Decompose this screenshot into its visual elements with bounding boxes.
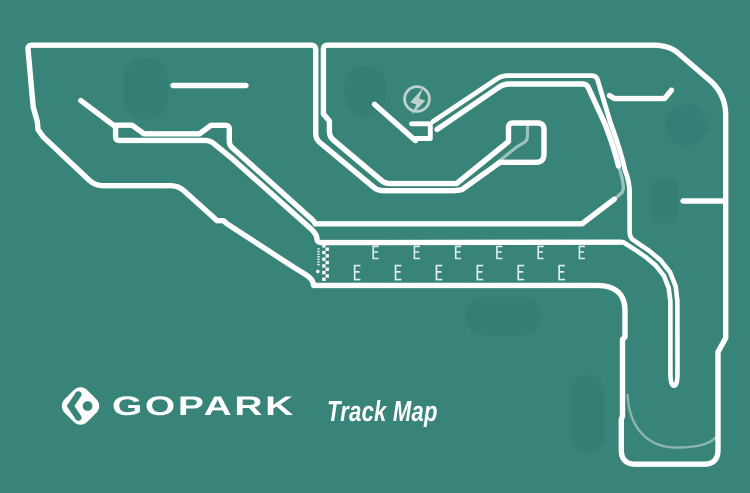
svg-text:GOPARK: GOPARK bbox=[112, 392, 296, 421]
svg-text:Track Map: Track Map bbox=[327, 396, 438, 428]
